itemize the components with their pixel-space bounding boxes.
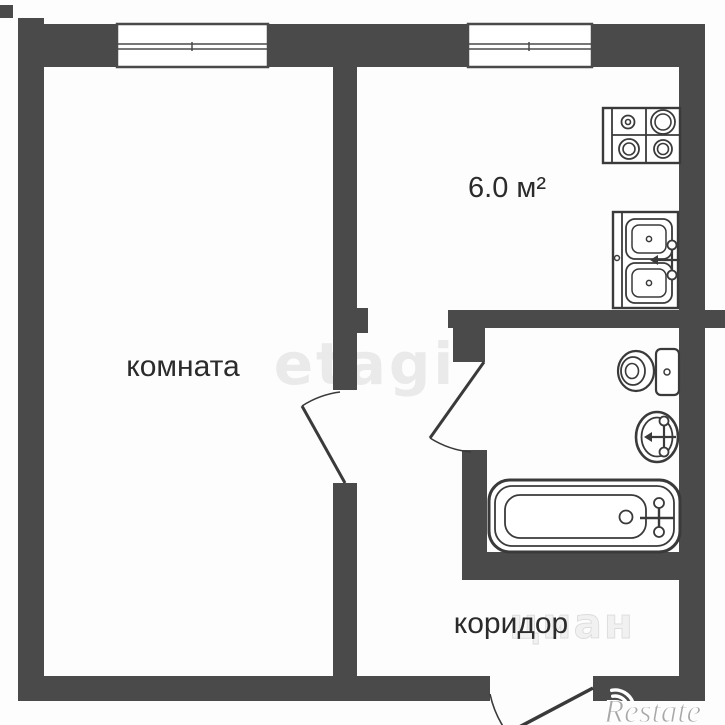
wall-segment-middle-bump [357,308,368,333]
window-icon-kitchen [468,24,592,67]
kitchen-area-label: 6.0 м² [468,172,546,204]
watermark-restate: Restate [603,694,701,725]
wall-segment-bath-door-stub [453,328,485,362]
tub-outer [489,480,680,552]
toilet-tank [656,349,679,395]
faucet-handle [654,498,664,508]
wall-segment-middle-upper [333,67,357,390]
faucet-handle [668,271,677,280]
washbasin-icon [636,412,678,462]
corner-mark [0,5,13,18]
window-icon-room [117,24,268,67]
kitchen-sink-icon [613,212,680,308]
stove-icon [603,108,680,163]
window-frame [468,24,592,67]
wall-segment-middle-lower [333,483,357,676]
wall-segment-left [18,24,44,701]
wall-segment-bath-top [448,310,725,328]
floor-plan: etagi циан [0,0,725,725]
bathtub-icon [489,480,680,552]
wall-segment-right [679,24,705,701]
faucet-handle [660,417,669,426]
watermark-etagi: etagi [274,330,457,398]
room-label: комната [126,350,240,383]
faucet-handle [654,527,664,537]
faucet-handle [660,448,669,457]
wall-segment-bottom-left [18,676,490,701]
brand-logo: Restate [603,690,701,725]
wall-segment-bath-bottom [462,552,682,580]
faucet-handle [668,241,677,250]
floor-plan-canvas: etagi циан [0,0,725,725]
corridor-label: коридор [454,607,568,640]
